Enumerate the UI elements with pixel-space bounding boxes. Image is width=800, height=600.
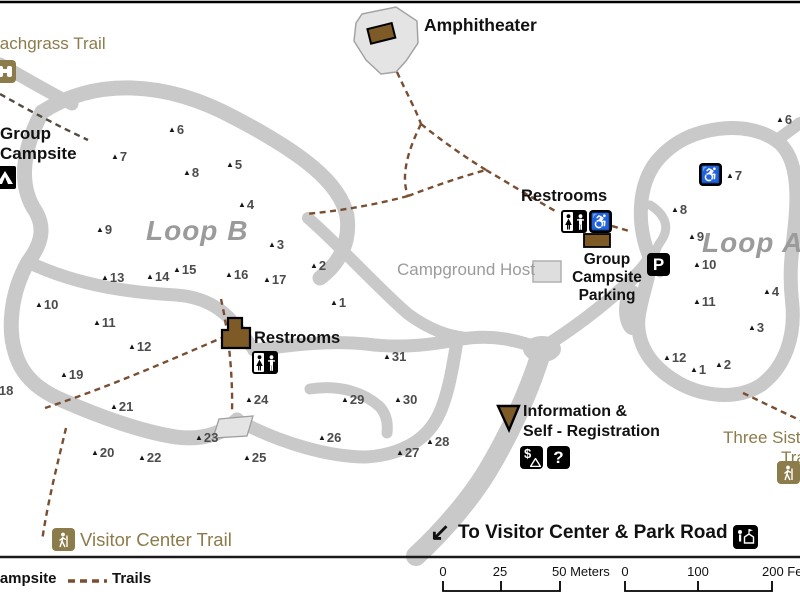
campsite-number: 5 bbox=[235, 158, 242, 171]
gcp-line3: Parking bbox=[579, 287, 636, 304]
self-registration-icon: $ bbox=[520, 446, 543, 469]
hiker-icon bbox=[777, 461, 800, 484]
beachgrass-trail-label: Beachgrass Trail bbox=[0, 34, 106, 54]
group-campsite-line1: Group bbox=[0, 124, 51, 143]
campsite-marker-loop-b-12: ▲12 bbox=[128, 340, 151, 353]
to-visitor-center-label: To Visitor Center & Park Road bbox=[458, 522, 728, 544]
campsite-marker-loop-b-8: ▲8 bbox=[183, 166, 199, 179]
campsite-marker-loop-b-26: ▲26 bbox=[318, 431, 341, 444]
campsite-marker-loop-b-2: ▲2 bbox=[310, 259, 326, 272]
campsite-triangle-icon: ▲ bbox=[396, 447, 404, 459]
campsite-marker-loop-a-3: ▲3 bbox=[748, 321, 764, 334]
campsite-marker-loop-b-30: ▲30 bbox=[394, 393, 417, 406]
campsite-marker-loop-b-9: ▲9 bbox=[96, 223, 112, 236]
campsite-triangle-icon: ▲ bbox=[383, 351, 391, 363]
campsite-triangle-icon: ▲ bbox=[243, 452, 251, 464]
scale-label: 0 bbox=[621, 564, 628, 579]
campsite-triangle-icon: ▲ bbox=[35, 299, 43, 311]
campsite-marker-loop-b-19: ▲19 bbox=[60, 368, 83, 381]
campsite-number: 30 bbox=[403, 393, 417, 406]
campsite-triangle-icon: ▲ bbox=[693, 259, 701, 271]
trail-amphitheater bbox=[397, 72, 421, 124]
visitor-center-glyph bbox=[736, 528, 755, 546]
campsite-number: 8 bbox=[680, 203, 687, 216]
campsite-triangle-icon: ▲ bbox=[690, 364, 698, 376]
legend-trails-label: Trails bbox=[112, 570, 151, 587]
amphitheater-label: Amphitheater bbox=[424, 15, 537, 36]
hiker-glyph bbox=[781, 465, 796, 481]
visitor-center-icon bbox=[733, 525, 758, 549]
campsite-number: 13 bbox=[110, 271, 124, 284]
question-information-icon: ? bbox=[547, 446, 570, 469]
trail-fork-left bbox=[405, 124, 421, 196]
scale-bar-feet bbox=[625, 581, 772, 591]
campsite-marker-loop-b-6: ▲6 bbox=[168, 123, 184, 136]
campsite-triangle-icon: ▲ bbox=[226, 159, 234, 171]
campsite-number: 4 bbox=[772, 285, 779, 298]
campsite-marker-loop-b-25: ▲25 bbox=[243, 451, 266, 464]
campsite-number: 25 bbox=[252, 451, 266, 464]
campsite-marker-loop-a-10: ▲10 bbox=[693, 258, 716, 271]
campsite-triangle-icon: ▲ bbox=[688, 231, 696, 243]
scale-label: 0 bbox=[439, 564, 446, 579]
campsite-triangle-icon: ▲ bbox=[263, 274, 271, 286]
restrooms-icon bbox=[561, 210, 587, 233]
campsite-marker-loop-a-12: ▲12 bbox=[663, 351, 686, 364]
campsite-marker-loop-b-15: ▲15 bbox=[173, 263, 196, 276]
tent-glyph bbox=[0, 170, 14, 185]
campsite-number: 27 bbox=[405, 446, 419, 459]
woman-figure-icon bbox=[254, 353, 264, 372]
wheelchair-accessible-icon: ♿ bbox=[699, 163, 722, 186]
binoculars-icon bbox=[0, 60, 16, 83]
campground-host-label: Campground Host bbox=[397, 260, 535, 280]
campsite-triangle-icon: ▲ bbox=[96, 224, 104, 236]
campsite-marker-loop-b-31: ▲31 bbox=[383, 350, 406, 363]
campsite-triangle-icon: ▲ bbox=[394, 394, 402, 406]
campsite-triangle-icon: ▲ bbox=[330, 297, 338, 309]
scale-label: 200 Feet bbox=[762, 564, 800, 579]
campsite-number: 3 bbox=[757, 321, 764, 334]
campsite-triangle-icon: ▲ bbox=[238, 199, 246, 211]
campsite-number: 7 bbox=[735, 169, 742, 182]
man-figure-icon bbox=[575, 212, 585, 231]
campsite-triangle-icon: ▲ bbox=[318, 432, 326, 444]
campsite-number: 31 bbox=[392, 350, 406, 363]
campsite-number: 12 bbox=[672, 351, 686, 364]
tent-icon bbox=[0, 166, 16, 189]
info-line2: Self - Registration bbox=[523, 423, 660, 440]
campsite-triangle-icon: ▲ bbox=[173, 264, 181, 276]
group-campsite-line2: Campsite bbox=[0, 144, 77, 163]
campsite-triangle-icon: ▲ bbox=[60, 369, 68, 381]
man-figure-icon bbox=[266, 353, 276, 372]
road-loop-b-middle bbox=[28, 262, 254, 350]
scale-bar-meters bbox=[443, 581, 560, 591]
campsite-number: 4 bbox=[247, 198, 254, 211]
campsite-triangle-icon: ▲ bbox=[168, 124, 176, 136]
parking-icon: P bbox=[647, 253, 670, 276]
campsite-number: 14 bbox=[155, 270, 169, 283]
trail-fork-right bbox=[421, 124, 486, 170]
campsite-number: 11 bbox=[702, 295, 716, 308]
restrooms-icon bbox=[252, 351, 278, 374]
campsite-number: 9 bbox=[105, 223, 112, 236]
campsite-marker-loop-b-4: ▲4 bbox=[238, 198, 254, 211]
campsite-marker-loop-a-7: ▲7 bbox=[726, 169, 742, 182]
gcp-line1: Group bbox=[584, 251, 631, 268]
group-campsite-label: GroupCampsite bbox=[0, 124, 77, 164]
trail-to-loop-b bbox=[305, 196, 408, 214]
campsite-marker-loop-b-1: ▲1 bbox=[330, 296, 346, 309]
campsite-number: 7 bbox=[120, 150, 127, 163]
campsite-marker-loop-a-1: ▲1 bbox=[690, 363, 706, 376]
campsite-number: 18 bbox=[0, 384, 13, 397]
campsite-triangle-icon: ▲ bbox=[138, 452, 146, 464]
campground-map: Beachgrass Trail GroupCampsite Amphithea… bbox=[0, 0, 800, 600]
campsite-marker-loop-b-13: ▲13 bbox=[101, 271, 124, 284]
wheelchair-accessible-icon: ♿ bbox=[589, 210, 612, 233]
campsite-number: 24 bbox=[254, 393, 268, 406]
campsite-number: 8 bbox=[192, 166, 199, 179]
campsite-marker-loop-b-11: ▲11 bbox=[93, 316, 116, 329]
campsite-marker-loop-a-6: ▲6 bbox=[776, 113, 792, 126]
parking-pad bbox=[213, 416, 253, 438]
campsite-marker-loop-b-27: ▲27 bbox=[396, 446, 419, 459]
loop-a-label: Loop A bbox=[702, 227, 800, 259]
trail-cross-link bbox=[408, 170, 486, 196]
campsite-triangle-icon: ▲ bbox=[693, 296, 701, 308]
campsite-triangle-icon: ▲ bbox=[776, 114, 784, 126]
scale-label: 100 bbox=[687, 564, 709, 579]
scale-label: 50 Meters bbox=[552, 564, 610, 579]
legend-campsite-label: Campsite bbox=[0, 570, 57, 587]
campsite-triangle-icon: ▲ bbox=[763, 286, 771, 298]
road-loop-b-north bbox=[42, 88, 348, 278]
campsite-triangle-icon: ▲ bbox=[726, 170, 734, 182]
campsite-marker-loop-b-17: ▲17 bbox=[263, 273, 286, 286]
visitor-center-trail-label: Visitor Center Trail bbox=[80, 529, 232, 551]
campsite-marker-loop-b-29: ▲29 bbox=[341, 393, 364, 406]
campsite-number: 6 bbox=[177, 123, 184, 136]
campsite-number: 1 bbox=[339, 296, 346, 309]
campsite-number: 28 bbox=[435, 435, 449, 448]
campsite-number: 6 bbox=[785, 113, 792, 126]
tent-glyph bbox=[530, 458, 541, 467]
campsite-number: 19 bbox=[69, 368, 83, 381]
campsite-number: 22 bbox=[147, 451, 161, 464]
campground-host-site bbox=[533, 261, 561, 282]
campsite-number: 16 bbox=[234, 268, 248, 281]
campsite-marker-loop-a-4: ▲4 bbox=[763, 285, 779, 298]
campsite-number: 12 bbox=[137, 340, 151, 353]
campsite-triangle-icon: ▲ bbox=[110, 401, 118, 413]
campsite-marker-loop-a-11: ▲11 bbox=[693, 295, 716, 308]
trail-restrooms-a-east bbox=[612, 226, 629, 231]
hiker-glyph bbox=[56, 532, 71, 548]
restrooms-building-loop-a bbox=[584, 234, 610, 247]
info-line1: Information & bbox=[523, 403, 627, 420]
campsite-triangle-icon: ▲ bbox=[341, 394, 349, 406]
campsite-marker-loop-b-14: ▲14 bbox=[146, 270, 169, 283]
campsite-marker-loop-b-7: ▲7 bbox=[111, 150, 127, 163]
campsite-triangle-icon: ▲ bbox=[146, 271, 154, 283]
campsite-number: 1 bbox=[699, 363, 706, 376]
campsite-triangle-icon: ▲ bbox=[91, 447, 99, 459]
campsite-number: 2 bbox=[319, 259, 326, 272]
campsite-marker-loop-a-8: ▲8 bbox=[671, 203, 687, 216]
campsite-triangle-icon: ▲ bbox=[310, 260, 318, 272]
scale-label: 25 bbox=[493, 564, 507, 579]
campsite-number: 3 bbox=[277, 238, 284, 251]
campsite-marker-loop-b-22: ▲22 bbox=[138, 451, 161, 464]
loop-b-label: Loop B bbox=[146, 215, 248, 247]
campsite-marker-loop-b-16: ▲16 bbox=[225, 268, 248, 281]
campsite-triangle-icon: ▲ bbox=[101, 272, 109, 284]
campsite-marker-loop-b-21: ▲21 bbox=[110, 400, 133, 413]
campsite-number: 29 bbox=[350, 393, 364, 406]
group-campsite-parking-label: GroupCampsiteParking bbox=[568, 251, 646, 305]
campsite-triangle-icon: ▲ bbox=[111, 151, 119, 163]
campsite-number: 17 bbox=[272, 273, 286, 286]
campsite-triangle-icon: ▲ bbox=[663, 352, 671, 364]
campsite-marker-loop-a-2: ▲2 bbox=[715, 358, 731, 371]
campsite-triangle-icon: ▲ bbox=[93, 317, 101, 329]
campsite-number: 2 bbox=[724, 358, 731, 371]
campsite-triangle-icon: ▲ bbox=[183, 167, 191, 179]
restrooms-loop-b-label: Restrooms bbox=[254, 329, 340, 348]
trail-visitor-center bbox=[42, 428, 66, 541]
campsite-number: 9 bbox=[697, 230, 704, 243]
campsite-triangle-icon: ▲ bbox=[128, 341, 136, 353]
binoculars-glyph bbox=[0, 64, 13, 79]
campsite-triangle-icon: ▲ bbox=[671, 204, 679, 216]
woman-figure-icon bbox=[563, 212, 573, 231]
campsite-marker-loop-b-23: ▲23 bbox=[195, 431, 218, 444]
campsite-marker-loop-b-28: ▲28 bbox=[426, 435, 449, 448]
campsite-triangle-icon: ▲ bbox=[268, 239, 276, 251]
roads bbox=[0, 64, 800, 556]
three-sisters-line1: Three Sisters bbox=[723, 428, 800, 447]
campsite-triangle-icon: ▲ bbox=[195, 432, 203, 444]
hiker-icon bbox=[52, 528, 75, 551]
campsite-number: 20 bbox=[100, 446, 114, 459]
campsite-number: 26 bbox=[327, 431, 341, 444]
campsite-marker-loop-b-24: ▲24 bbox=[245, 393, 268, 406]
information-self-registration-label: Information &Self - Registration bbox=[523, 402, 660, 442]
campsite-triangle-icon: ▲ bbox=[715, 359, 723, 371]
campsite-number: 21 bbox=[119, 400, 133, 413]
arrow-southwest-icon: ↙ bbox=[430, 518, 450, 547]
campsite-marker-loop-b-3: ▲3 bbox=[268, 238, 284, 251]
campsite-number: 10 bbox=[44, 298, 58, 311]
campsite-triangle-icon: ▲ bbox=[225, 269, 233, 281]
campsite-marker-loop-b-20: ▲20 bbox=[91, 446, 114, 459]
campsite-number: 15 bbox=[182, 263, 196, 276]
campsite-triangle-icon: ▲ bbox=[426, 436, 434, 448]
campsite-marker-loop-b-18: ▲18 bbox=[0, 384, 13, 397]
campsite-marker-loop-b-5: ▲5 bbox=[226, 158, 242, 171]
gcp-line2: Campsite bbox=[572, 269, 642, 286]
map-canvas bbox=[0, 0, 800, 600]
campsite-marker-loop-b-10: ▲10 bbox=[35, 298, 58, 311]
campsite-triangle-icon: ▲ bbox=[748, 322, 756, 334]
restrooms-loop-a-label: Restrooms bbox=[521, 187, 607, 206]
campsite-number: 10 bbox=[702, 258, 716, 271]
campsite-number: 23 bbox=[204, 431, 218, 444]
campsite-triangle-icon: ▲ bbox=[245, 394, 253, 406]
campsite-marker-loop-a-9: ▲9 bbox=[688, 230, 704, 243]
campsite-number: 11 bbox=[102, 316, 116, 329]
